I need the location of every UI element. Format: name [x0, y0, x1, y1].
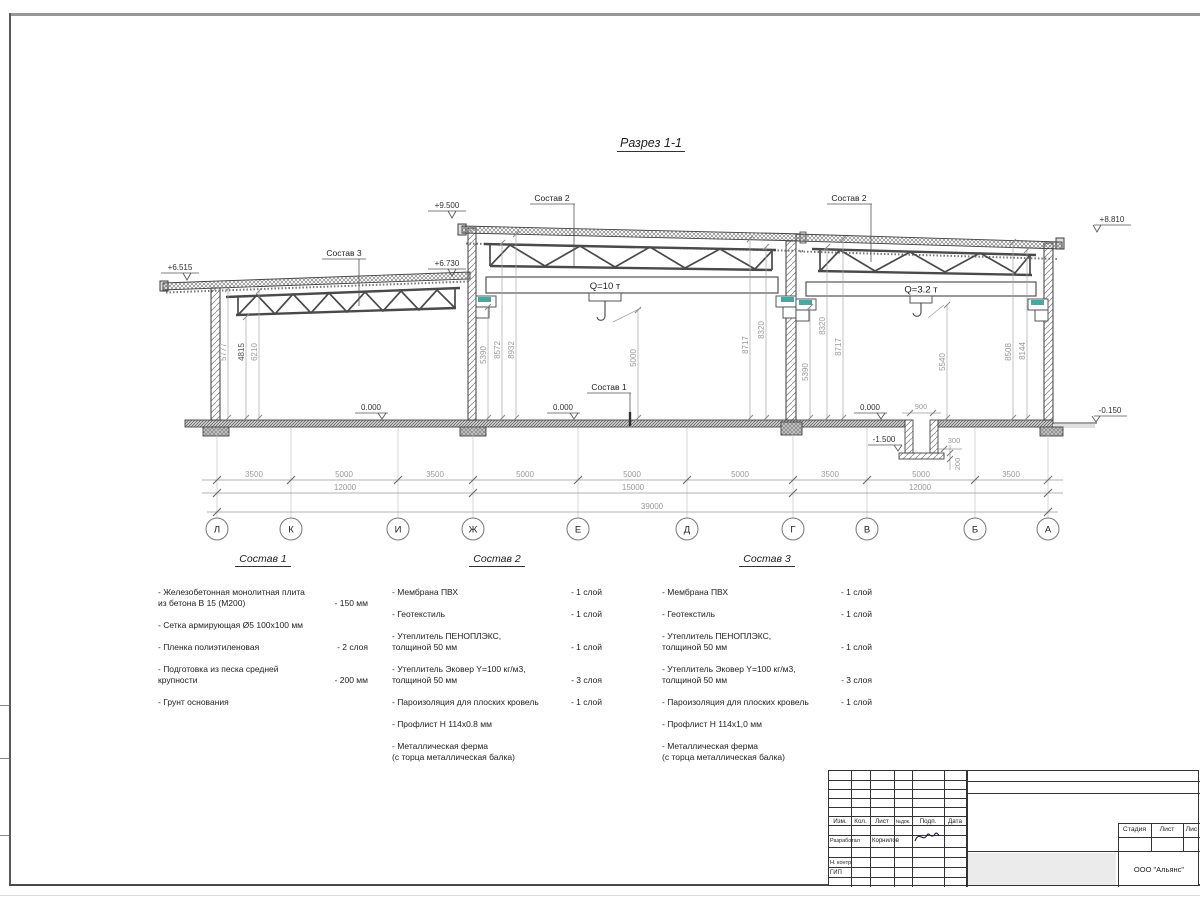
vdim: 5540 [938, 353, 947, 371]
level-arrow-icon [570, 413, 578, 419]
svg-text:-1.500: -1.500 [873, 435, 896, 444]
callout-sostav1: Состав 1 [587, 382, 631, 426]
composition-item: - Металлическая ферма (с торца металличе… [392, 741, 602, 763]
tb-header-ndok: №док. [894, 818, 912, 827]
fold-mark [0, 758, 9, 759]
composition-item: - Мембрана ПВХ- 1 слой [662, 587, 872, 598]
svg-text:Состав 1: Состав 1 [591, 382, 627, 392]
dimension-ticks [213, 476, 1052, 516]
composition-list-3: Состав 3 - Мембрана ПВХ- 1 слой - Геотек… [662, 553, 872, 774]
svg-text:39000: 39000 [641, 502, 664, 511]
elevation-right-top: +8.810 [1093, 215, 1131, 232]
tb-header-data: Дата [944, 817, 966, 826]
level-arrow-icon [894, 445, 902, 451]
composition-item: - Пленка полиэтиленовая- 2 слоя [158, 642, 368, 653]
composition-item: - Утеплитель ПЕНОПЛЭКС, толщиной 50 мм- … [392, 631, 602, 653]
tb-developed-label: Разработал [830, 837, 870, 846]
svg-text:Состав 2: Состав 2 [831, 193, 867, 203]
composition-list-2: Состав 2 - Мембрана ПВХ- 1 слой - Геотек… [392, 553, 602, 774]
tb-header-podp: Подп. [912, 817, 944, 826]
tb-sheets-label: Лис [1183, 825, 1200, 834]
axis-label: Л [214, 525, 220, 536]
composition-item: - Мембрана ПВХ- 1 слой [392, 587, 602, 598]
vdim: 5390 [479, 346, 488, 364]
level-arrow-icon [448, 211, 456, 218]
page-title: Разрез 1-1 [596, 134, 706, 152]
svg-text:3500: 3500 [245, 470, 263, 479]
elevation-marks: +9.500 +6.730 +6.515 +8.810 0.000 [161, 201, 1131, 451]
floor-level-mark: 0.000 [355, 403, 388, 419]
svg-text:-0.150: -0.150 [1099, 406, 1122, 415]
svg-text:+8.810: +8.810 [1100, 215, 1125, 224]
svg-text:3500: 3500 [1002, 470, 1020, 479]
svg-text:0.000: 0.000 [860, 403, 881, 412]
composition-title: Состав 3 [739, 553, 794, 567]
level-arrow-icon [1092, 416, 1100, 422]
axis-label: Ж [469, 525, 478, 536]
tb-header-kol: Кол. [851, 817, 870, 826]
composition-title: Состав 2 [469, 553, 524, 567]
tb-header-list: Лист [870, 817, 894, 826]
tb-gip-label: ГИП [830, 869, 870, 878]
composition-item: - Профлист Н 114х1,0 мм [662, 719, 872, 730]
svg-text:0.000: 0.000 [553, 403, 574, 412]
axis-label: Е [575, 525, 581, 536]
axis-label: Д [684, 525, 691, 536]
middle-truss [484, 244, 776, 270]
composition-list-1: Состав 1 - Железобетонная монолитная пли… [158, 553, 368, 719]
ground-level-mark: -0.150 [1092, 406, 1127, 422]
vdim: 4815 [237, 343, 246, 361]
svg-text:15000: 15000 [622, 483, 645, 492]
svg-text:0.000: 0.000 [361, 403, 382, 412]
composition-item: - Утеплитель ПЕНОПЛЭКС, толщиной 50 мм- … [662, 631, 872, 653]
crane-capacity-label: Q=10 т [590, 281, 621, 292]
vdim: 5777 [219, 343, 228, 361]
tb-header-izm: Изм. [829, 817, 851, 826]
composition-item: - Профлист Н 114х0.8 мм [392, 719, 602, 730]
fold-mark [0, 835, 9, 836]
tb-developed-name: Корнилов [872, 837, 912, 846]
composition-item: - Железобетонная монолитная плита из бет… [158, 587, 368, 609]
svg-text:Состав 3: Состав 3 [326, 248, 362, 258]
vertical-dimensions: 5777 4815 6210 5390 8572 8932 5000 8717 … [219, 231, 1030, 421]
stamp-area [968, 853, 1116, 885]
vdim: 8572 [493, 341, 502, 359]
composition-item: - Утеплитель Эковер Y=100 кг/м3, толщино… [392, 664, 602, 686]
svg-text:5000: 5000 [335, 470, 353, 479]
pit-level-mark: -1.500 [868, 435, 902, 451]
crane-corbels [476, 296, 1048, 321]
tb-company-name: ООО "Альянс" [1118, 865, 1200, 874]
axis-label: Г [790, 525, 795, 536]
axis-label: Б [972, 525, 978, 536]
composition-item: - Металлическая ферма (с торца металличе… [662, 741, 872, 763]
elevation-mid-top: +9.500 [428, 201, 466, 218]
svg-text:5000: 5000 [623, 470, 641, 479]
svg-text:12000: 12000 [909, 483, 932, 492]
pit-wall-dim: 300 [948, 436, 961, 445]
svg-text:5000: 5000 [731, 470, 749, 479]
dimension-labels: 3500 5000 3500 5000 5000 5000 3500 5000 … [245, 470, 1020, 511]
level-arrow-icon [183, 273, 191, 280]
title-block: Изм. Кол. Лист №док. Подп. Дата Разработ… [828, 770, 1199, 886]
vdim: 8932 [507, 341, 516, 359]
vdim: 8717 [834, 338, 843, 356]
floor-slab [185, 420, 1097, 436]
axis-label: А [1045, 525, 1052, 536]
drawing-sheet: Q=10 т Q=3.2 т [0, 0, 1200, 900]
pit-slab-dim: 200 [953, 458, 962, 471]
composition-item: - Геотекстиль- 1 слой [392, 609, 602, 620]
callout-sostav2-right: Состав 2 [827, 193, 872, 262]
level-arrow-icon [1093, 225, 1101, 232]
tb-ncontr-label: Н. контр. [830, 859, 870, 868]
axis-label: К [288, 525, 294, 536]
svg-text:5000: 5000 [516, 470, 534, 479]
svg-text:+6.730: +6.730 [435, 259, 460, 268]
tb-stage-label: Стадия [1118, 825, 1151, 834]
hook-icon [597, 316, 605, 320]
level-arrow-icon [877, 413, 885, 419]
axis-label: В [864, 525, 870, 536]
svg-text:+6.515: +6.515 [168, 263, 193, 272]
floor-level-mark: 0.000 [854, 403, 887, 419]
composition-item: - Подготовка из песка средней крупности-… [158, 664, 368, 686]
composition-item: - Грунт основания [158, 697, 368, 708]
svg-text:3500: 3500 [426, 470, 444, 479]
axis-bubbles: Л К И Ж Е Д Г В Б А [206, 518, 1059, 540]
crane-small: Q=3.2 т [806, 282, 1036, 318]
floor-level-mark: 0.000 [547, 403, 580, 419]
composition-title: Состав 1 [235, 553, 290, 567]
svg-text:Состав 2: Состав 2 [534, 193, 570, 203]
section-drawing: Q=10 т Q=3.2 т [0, 0, 1200, 560]
fold-mark [0, 705, 9, 706]
right-truss [812, 249, 1036, 275]
svg-text:12000: 12000 [334, 483, 357, 492]
signature [913, 828, 941, 846]
pit-width-dim: 900 [915, 402, 928, 411]
crane-big: Q=10 т [486, 277, 778, 322]
elevation-left-eave: +6.515 [161, 263, 199, 280]
vdim: 8717 [741, 336, 750, 354]
composition-item: - Геотекстиль- 1 слой [662, 609, 872, 620]
tb-sheet-label: Лист [1151, 825, 1183, 834]
composition-item: - Пароизоляция для плоских кровель- 1 сл… [392, 697, 602, 708]
vdim: 8320 [818, 317, 827, 335]
left-truss [226, 288, 460, 315]
axis-label: И [395, 525, 402, 536]
pit [899, 420, 944, 459]
composition-item: - Сетка армирующая Ø5 100x100 мм [158, 620, 368, 631]
svg-text:3500: 3500 [821, 470, 839, 479]
vdim: 8320 [757, 321, 766, 339]
vdim: 8508 [1004, 343, 1013, 361]
vdim: 6210 [250, 343, 259, 361]
vdim: 8144 [1018, 342, 1027, 360]
composition-item: - Утеплитель Эковер Y=100 кг/м3, толщино… [662, 664, 872, 686]
composition-item: - Пароизоляция для плоских кровель- 1 сл… [662, 697, 872, 708]
vdim: 5000 [629, 349, 638, 367]
svg-text:+9.500: +9.500 [435, 201, 460, 210]
hook-icon [913, 312, 921, 316]
svg-text:5000: 5000 [912, 470, 930, 479]
level-arrow-icon [378, 413, 386, 419]
vdim: 5390 [801, 363, 810, 381]
sheet-edge [0, 895, 1200, 896]
crane-capacity-label: Q=3.2 т [904, 285, 938, 296]
